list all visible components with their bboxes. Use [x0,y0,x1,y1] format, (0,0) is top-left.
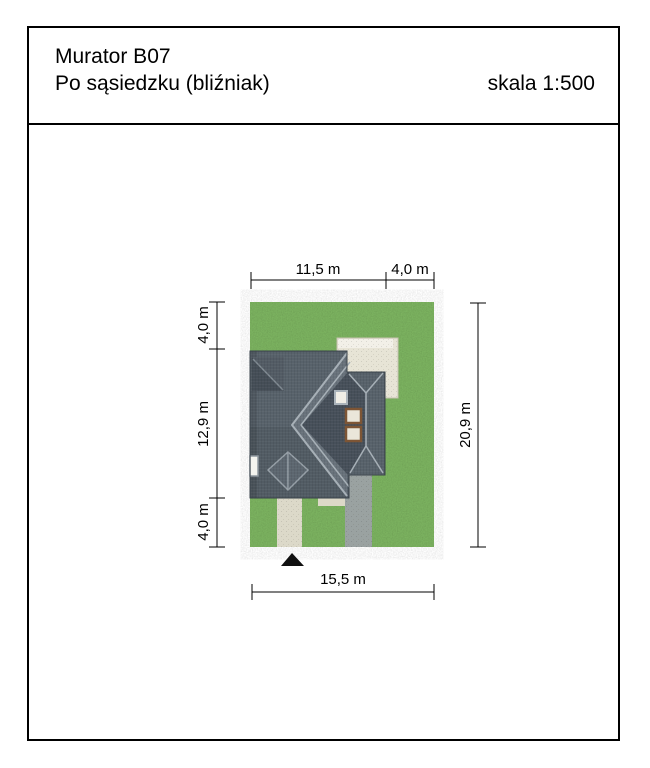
walkway-speckle [277,498,302,547]
roof-window-1 [346,409,361,423]
dim-label-house-depth: 12,9 m [195,401,212,447]
dim-label-bottom-setback: 4,0 m [195,503,212,541]
dim-label-side-yard: 4,0 m [391,261,429,278]
entrance-arrow-icon [281,553,304,566]
side-window [250,456,258,476]
walkway [277,498,302,547]
dim-label-house-width: 11,5 m [296,261,341,278]
dim-label-plot-width: 15,5 m [320,571,366,588]
site-plan-drawing: 11,5 m 4,0 m 4,0 m 12,9 m 4,0 m 20,9 m 1… [0,0,650,768]
site-plan-page: Murator B07 Po sąsiedzku (bliźniak) skal… [0,0,650,768]
roof-window-2 [346,427,361,441]
roof-skylight [335,391,347,404]
dim-label-top-setback: 4,0 m [195,306,212,344]
dim-label-plot-depth: 20,9 m [457,402,474,448]
